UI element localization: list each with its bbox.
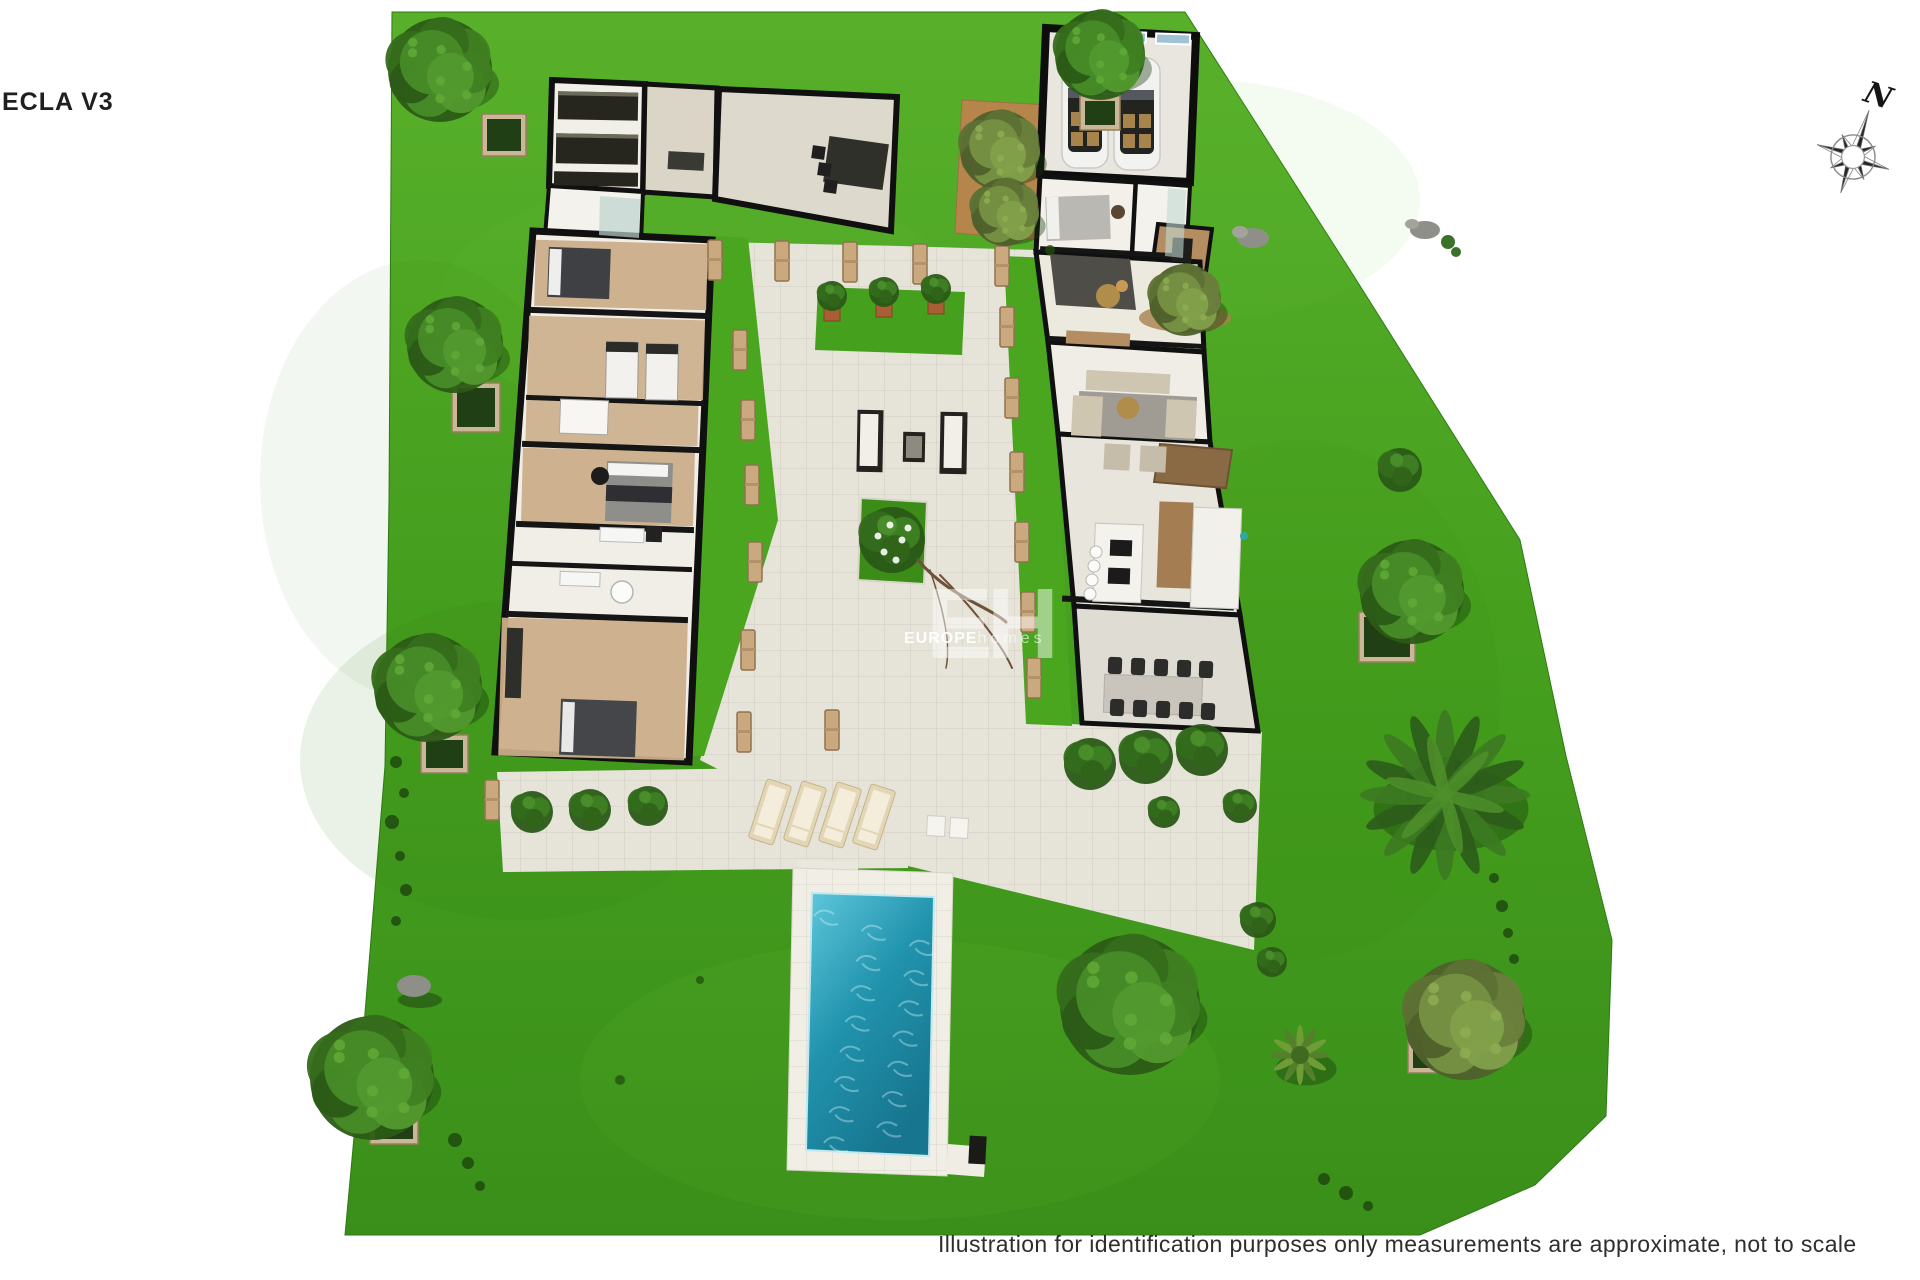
compass-rose: N xyxy=(1805,75,1905,206)
disclaimer-caption: Illustration for identification purposes… xyxy=(938,1231,1857,1258)
compass-north-label: N xyxy=(1858,75,1898,118)
site-plan-rendering: N xyxy=(0,0,1920,1280)
plan-title: ECLA V3 xyxy=(2,88,114,117)
floor-plan-page: N ECLA V3 EH EUROPEhomes Illustration fo… xyxy=(0,0,1920,1280)
